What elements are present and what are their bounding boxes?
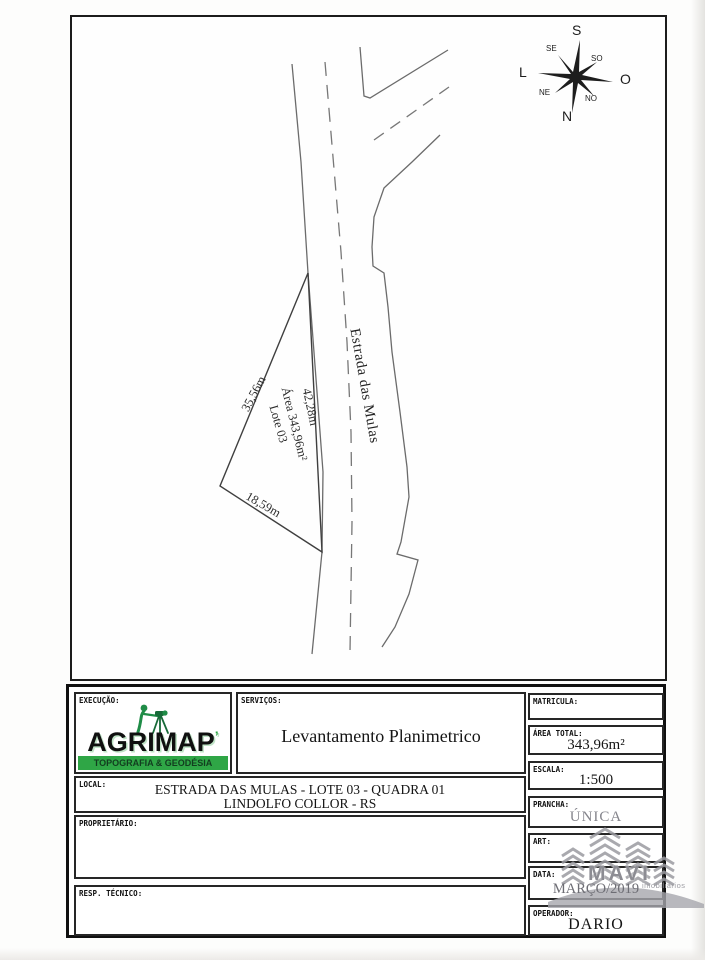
- execucao-cell: EXECUÇÃO: AGRIMAP’ TOPOGRAFIA & GEODÉSIA: [74, 692, 232, 774]
- compass-so-label: SO: [591, 54, 603, 63]
- matricula-cell: MATRICULA:: [528, 693, 664, 720]
- local-line1: ESTRADA DAS MULAS - LOTE 03 - QUADRA 01: [76, 783, 524, 797]
- servicos-value: Levantamento Planimetrico: [238, 726, 524, 747]
- escala-cell: ESCALA: 1:500: [528, 761, 664, 790]
- scanned-survey-page: Estrada das Mulas 42,28m Área 343,96m² L…: [0, 0, 705, 960]
- compass-rose: S SE SO L O NE NO N: [516, 18, 641, 126]
- compass-south-label: S: [572, 22, 581, 38]
- operador-cell: OPERADOR: DARIO: [528, 905, 664, 936]
- servicos-label: SERVIÇOS:: [241, 696, 282, 705]
- agrimap-logo-text: AGRIMAP: [87, 727, 215, 757]
- local-cell: LOCAL: ESTRADA DAS MULAS - LOTE 03 - QUA…: [74, 776, 526, 813]
- escala-value: 1:500: [530, 772, 662, 789]
- compass-no-label: NO: [585, 94, 597, 103]
- prancha-value: ÚNICA: [530, 809, 662, 826]
- resp-tecnico-label: RESP. TÉCNICO:: [79, 889, 142, 898]
- compass-se-label: SE: [546, 44, 557, 53]
- prancha-label: PRANCHA:: [533, 800, 569, 809]
- art-label: ART:: [533, 837, 551, 846]
- agrimap-logo: AGRIMAP’: [76, 729, 230, 756]
- data-label: DATA:: [533, 870, 556, 879]
- compass-east-label: L: [519, 64, 527, 80]
- road-right-edge-lower: [372, 135, 440, 647]
- road-right-edge-upper: [360, 47, 448, 98]
- matricula-label: MATRICULA:: [533, 697, 578, 706]
- local-line2: LINDOLFO COLLOR - RS: [76, 797, 524, 811]
- art-cell: ART:: [528, 833, 664, 863]
- prancha-cell: PRANCHA: ÚNICA: [528, 796, 664, 828]
- road-left-edge: [292, 64, 323, 654]
- agrimap-tagline: TOPOGRAFIA & GEODÉSIA: [78, 756, 228, 770]
- title-block: EXECUÇÃO: AGRIMAP’ TOPOGRAFIA & GEODÉSIA…: [66, 684, 666, 938]
- compass-west-label: O: [620, 71, 631, 87]
- servicos-cell: SERVIÇOS: Levantamento Planimetrico: [236, 692, 526, 774]
- road-centerline: [325, 62, 352, 652]
- resp-tecnico-cell: RESP. TÉCNICO:: [74, 885, 526, 936]
- scan-edge-shadow-bottom: [0, 948, 705, 960]
- proprietario-cell: PROPRIETÁRIO:: [74, 815, 526, 879]
- compass-north-label: N: [562, 108, 572, 124]
- area-total-value: 343,96m²: [530, 737, 662, 754]
- area-total-cell: ÁREA TOTAL: 343,96m²: [528, 725, 664, 755]
- data-value: MARÇO/2019: [530, 881, 662, 898]
- compass-ne-label: NE: [539, 88, 550, 97]
- proprietario-label: PROPRIETÁRIO:: [79, 819, 138, 828]
- branch-centerline: [374, 87, 449, 140]
- execucao-label: EXECUÇÃO:: [79, 696, 120, 705]
- operador-value: DARIO: [530, 916, 662, 934]
- agrimap-logo-mark: ’: [215, 728, 219, 744]
- scan-edge-shadow-right: [691, 0, 705, 960]
